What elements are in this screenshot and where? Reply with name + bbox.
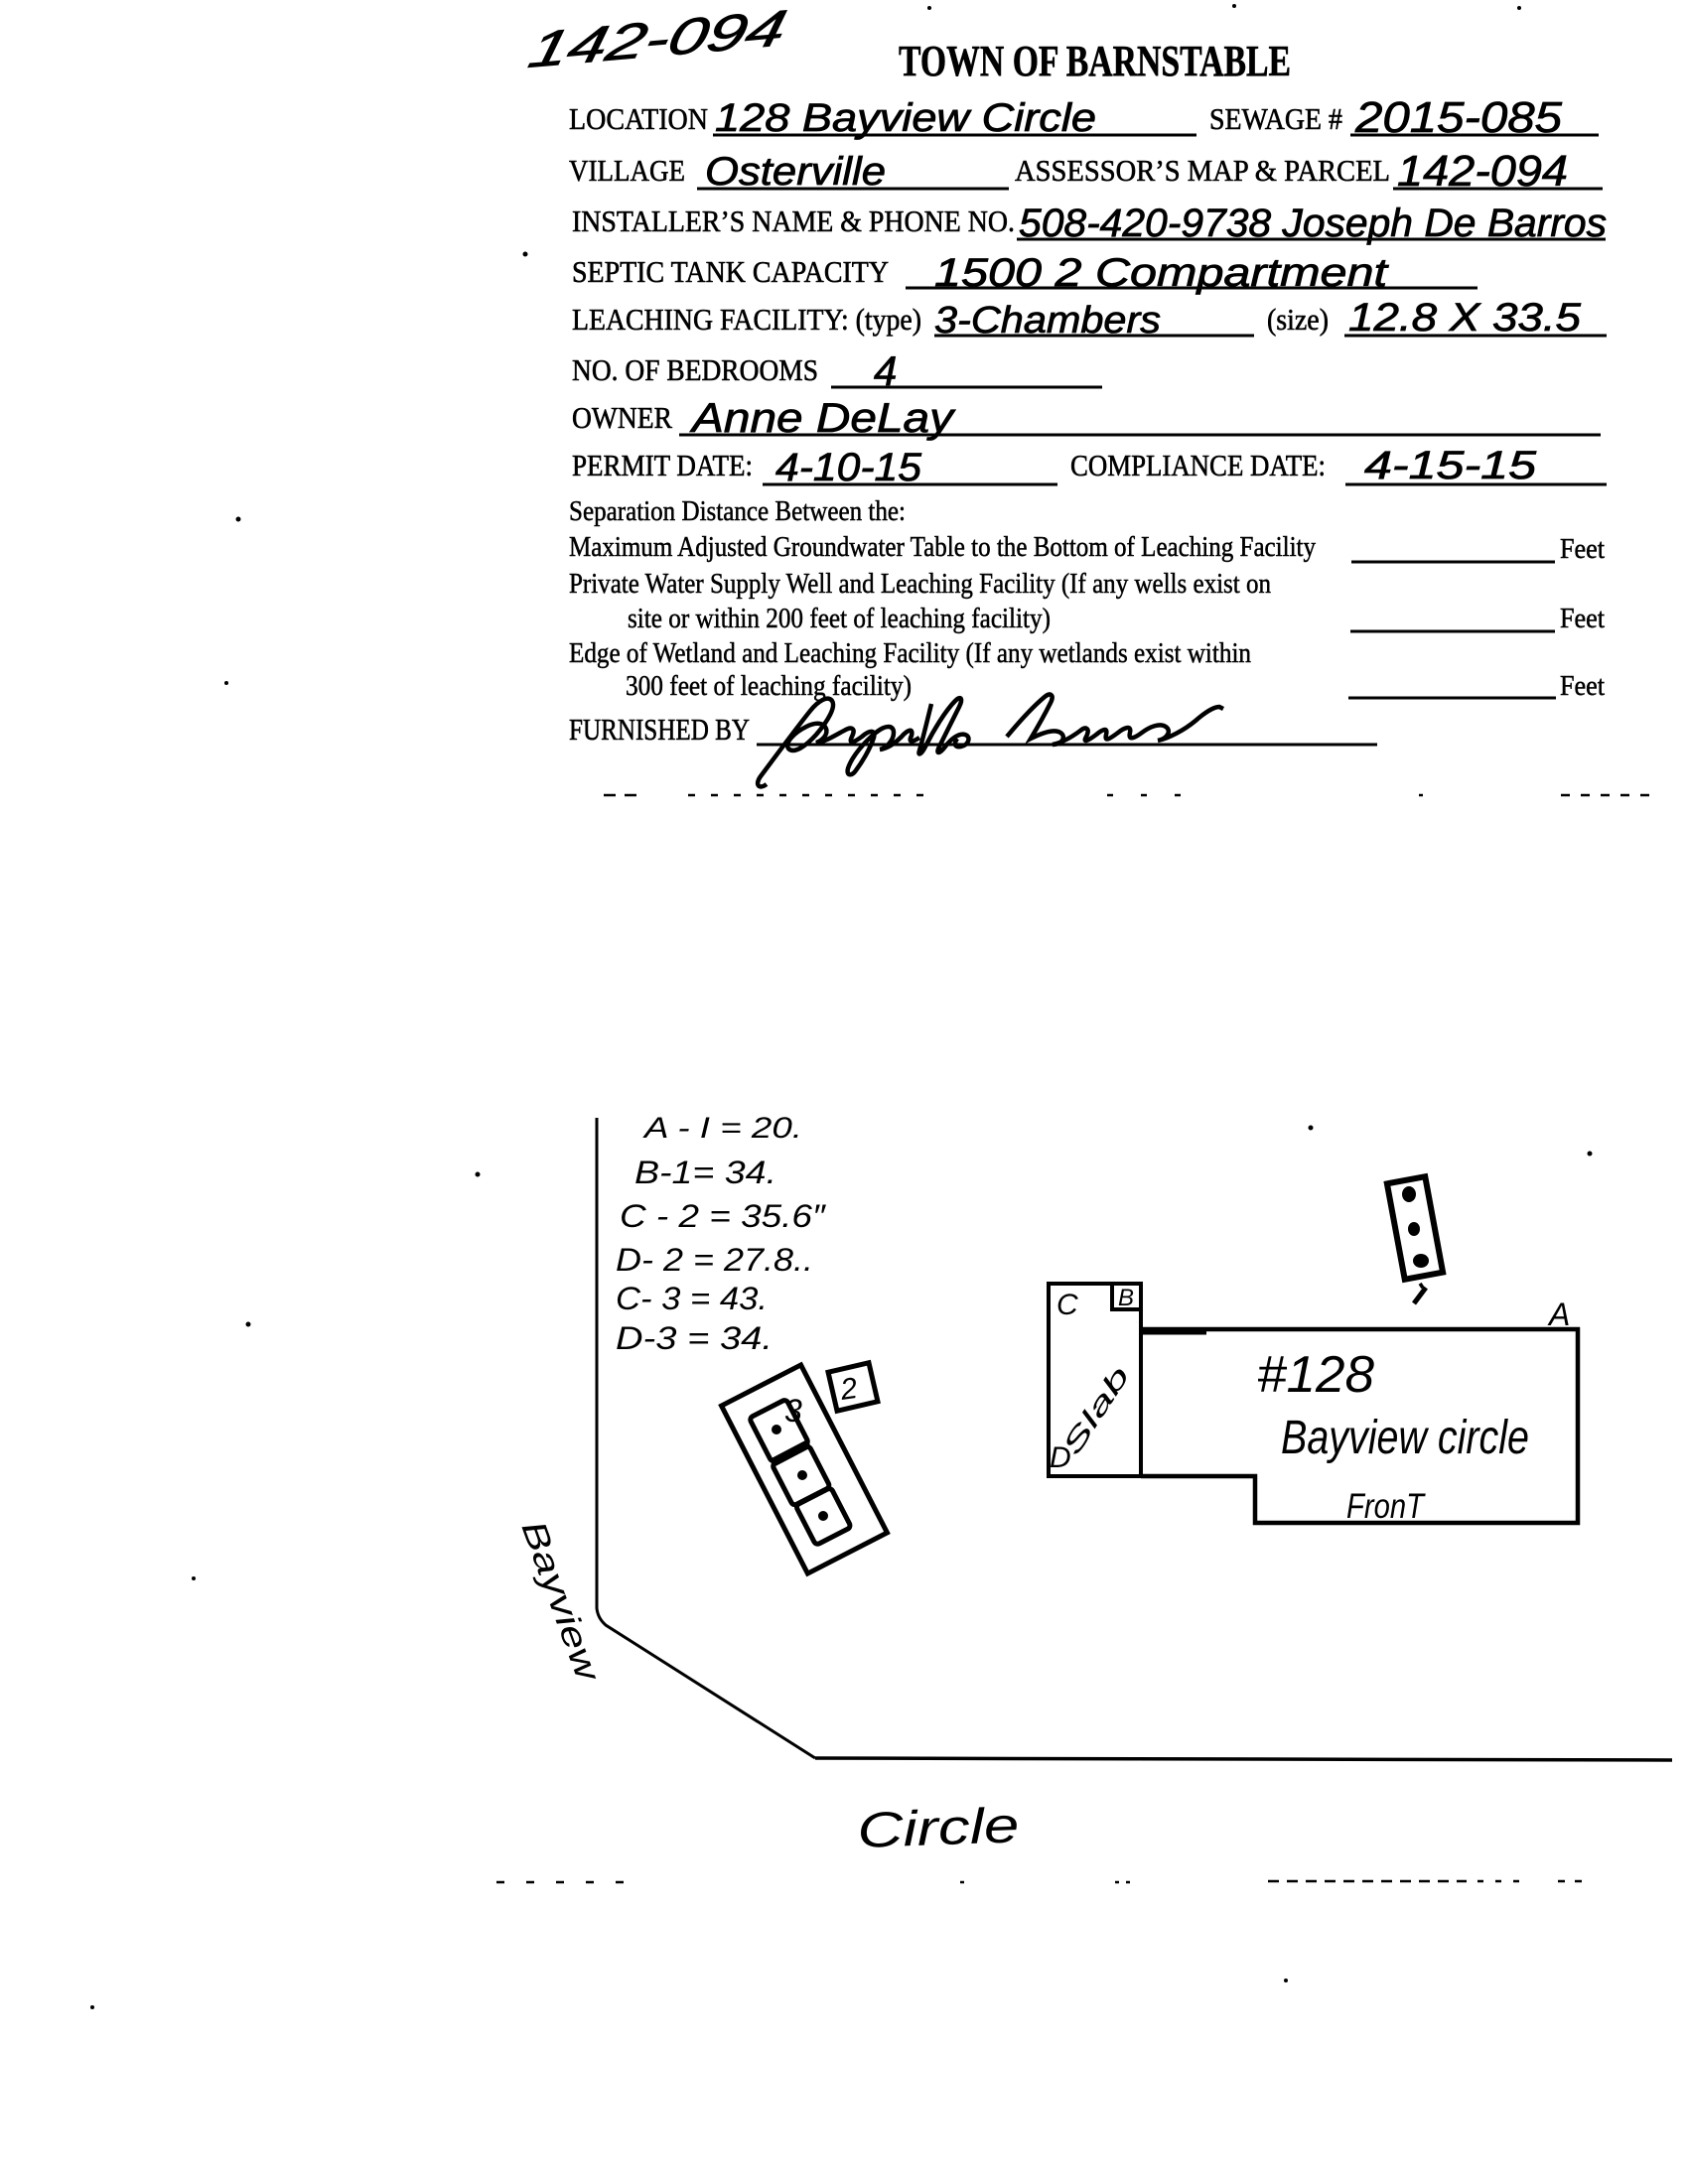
svg-text:LOCATION: LOCATION — [569, 101, 708, 136]
svg-text:Osterville: Osterville — [705, 150, 886, 194]
svg-text:3-Chambers: 3-Chambers — [934, 300, 1161, 341]
svg-text:SEPTIC TANK CAPACITY: SEPTIC TANK CAPACITY — [572, 254, 889, 289]
svg-text:D-3 = 34.: D-3 = 34. — [616, 1320, 773, 1356]
svg-text:TOWN OF BARNSTABLE: TOWN OF BARNSTABLE — [899, 37, 1291, 85]
svg-text:COMPLIANCE DATE:: COMPLIANCE DATE: — [1070, 448, 1326, 482]
svg-text:ASSESSOR’S MAP & PARCEL: ASSESSOR’S MAP & PARCEL — [1015, 153, 1390, 188]
svg-text:C - 2 = 35.6″: C - 2 = 35.6″ — [620, 1198, 827, 1234]
svg-text:PERMIT DATE:: PERMIT DATE: — [572, 448, 753, 482]
svg-text:Private Water Supply Well and: Private Water Supply Well and Leaching F… — [569, 568, 1271, 600]
svg-text:C: C — [1056, 1289, 1078, 1321]
svg-text:Feet: Feet — [1560, 533, 1605, 565]
svg-text:Anne DeLay: Anne DeLay — [689, 394, 957, 441]
svg-text:Maximum Adjusted Groundwater T: Maximum Adjusted Groundwater Table to th… — [569, 531, 1316, 563]
svg-text:(size): (size) — [1267, 302, 1329, 337]
svg-text:4-15-15: 4-15-15 — [1364, 444, 1537, 487]
svg-text:D- 2 = 27.8..: D- 2 = 27.8.. — [616, 1242, 813, 1278]
svg-text:4-10-15: 4-10-15 — [775, 446, 922, 489]
svg-text:B-1= 34.: B-1= 34. — [634, 1155, 776, 1190]
svg-text:Separation Distance Between th: Separation Distance Between the: — [569, 495, 906, 527]
svg-text:Bayview circle: Bayview circle — [1281, 1412, 1529, 1464]
svg-text:NO. OF BEDROOMS: NO. OF BEDROOMS — [572, 352, 818, 387]
svg-text:#128: #128 — [1257, 1346, 1374, 1404]
svg-text:A - I = 20.: A - I = 20. — [642, 1112, 802, 1145]
svg-text:12.8 X 33.5: 12.8 X 33.5 — [1348, 296, 1582, 340]
svg-text:SEWAGE #: SEWAGE # — [1209, 101, 1342, 136]
svg-text:Feet: Feet — [1560, 670, 1605, 702]
svg-text:LEACHING FACILITY: (type): LEACHING FACILITY: (type) — [572, 302, 921, 337]
svg-text:4: 4 — [874, 347, 897, 394]
svg-text:1500 2 Compartment: 1500 2 Compartment — [934, 251, 1389, 295]
svg-text:3: 3 — [784, 1393, 802, 1429]
svg-text:C- 3 = 43.: C- 3 = 43. — [616, 1281, 768, 1316]
svg-text:INSTALLER’S NAME & PHONE NO.: INSTALLER’S NAME & PHONE NO. — [572, 204, 1015, 238]
svg-text:B: B — [1118, 1285, 1134, 1311]
svg-text:A: A — [1547, 1297, 1570, 1332]
svg-text:VILLAGE: VILLAGE — [569, 153, 685, 188]
svg-text:142-094: 142-094 — [1397, 147, 1568, 196]
svg-text:Edge of Wetland and Leaching F: Edge of Wetland and Leaching Facility (I… — [569, 637, 1251, 669]
svg-text:FronT: FronT — [1346, 1487, 1426, 1526]
svg-text:128 Bayview Circle: 128 Bayview Circle — [715, 96, 1096, 140]
svg-text:FURNISHED BY: FURNISHED BY — [569, 712, 750, 747]
svg-text:OWNER: OWNER — [572, 400, 672, 435]
svg-text:Feet: Feet — [1560, 603, 1605, 634]
svg-text:508-420-9738 Joseph De Barros: 508-420-9738 Joseph De Barros — [1019, 202, 1607, 245]
svg-text:Circle: Circle — [856, 1797, 1020, 1858]
svg-text:300 feet of leaching facility): 300 feet of leaching facility) — [626, 670, 912, 702]
svg-text:2015-085: 2015-085 — [1354, 93, 1563, 142]
svg-text:site or within 200 feet of lea: site or within 200 feet of leaching faci… — [628, 603, 1051, 634]
